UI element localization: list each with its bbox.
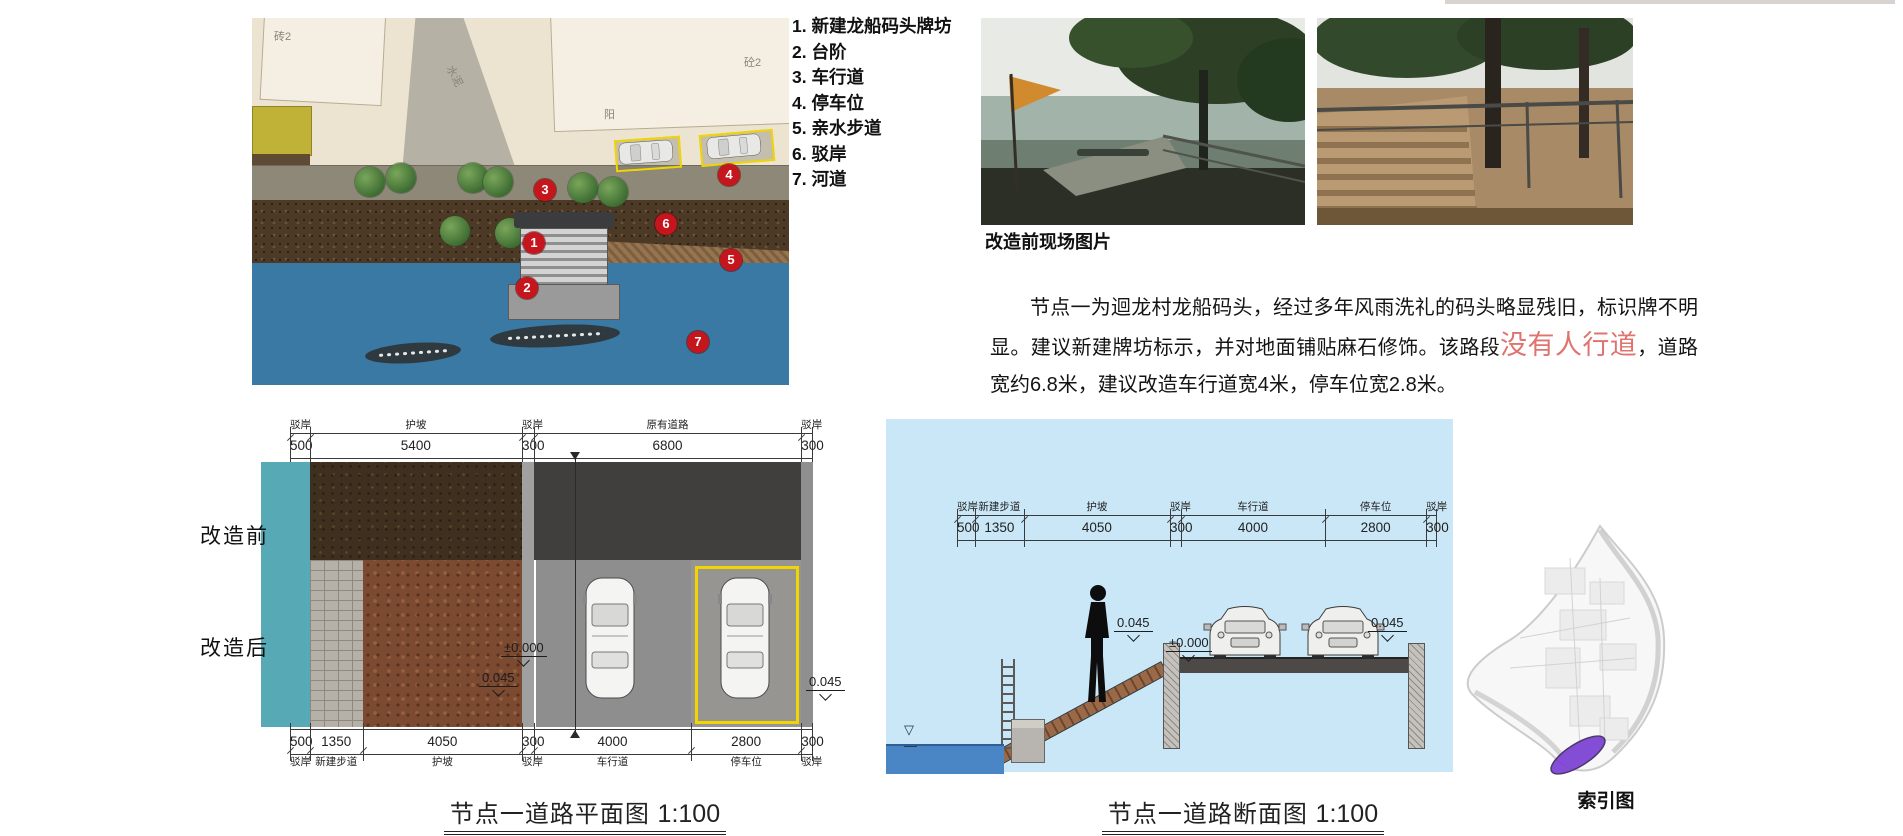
plan-marker: 6 — [655, 213, 677, 235]
legend-item: 1. 新建龙船码头牌坊 — [792, 14, 1002, 40]
pier-archway — [514, 212, 614, 228]
car-front-icon — [1200, 602, 1290, 660]
dimension-segment: 护坡 5400 — [310, 418, 522, 459]
plan-after-slope — [363, 560, 522, 727]
dimension-label: 护坡 — [1024, 500, 1170, 515]
dimension-segment: 驳岸 300 — [522, 729, 534, 770]
plan-marker: 5 — [720, 249, 742, 271]
photo-caption: 改造前现场图片 — [985, 228, 1111, 254]
road-plan-drawing: ±0.000 0.045 0.045 — [261, 462, 825, 727]
tree-icon — [440, 216, 470, 246]
car-top-icon — [718, 574, 772, 702]
site-plan-rendering: 砖2 水泥 阳 砼2 1234567 — [252, 18, 789, 385]
dimension-value: 500 — [957, 515, 975, 541]
tree-icon — [355, 167, 385, 197]
photo-before-steps — [1317, 18, 1633, 225]
plan-area-label: 阳 — [604, 106, 615, 122]
plan-before-edge — [801, 462, 813, 560]
dimension-segment: 车行道 4000 — [534, 729, 691, 770]
car-top-icon — [583, 574, 637, 702]
plan-after-edge — [801, 560, 813, 727]
dimension-label: 停车位 — [691, 755, 801, 770]
plan-field-patch — [252, 106, 312, 156]
dimension-value: 2800 — [691, 729, 801, 755]
dimension-label: 新建步道 — [310, 755, 363, 770]
dimension-value: 500 — [290, 729, 310, 755]
plan-marker: 3 — [534, 179, 556, 201]
plan-area-label: 砼2 — [744, 54, 761, 70]
dimension-segment: 驳岸 500 — [290, 418, 310, 459]
dimension-value: 2800 — [1325, 515, 1426, 541]
section-cut-line — [575, 452, 576, 738]
photo-riverside-graphic — [981, 18, 1305, 225]
dimension-label: 新建步道 — [975, 500, 1024, 515]
dimension-value: 4000 — [1181, 515, 1325, 541]
section-post-right — [1408, 643, 1425, 749]
design-document-page: 砖2 水泥 阳 砼2 1234567 1. 新建龙船 — [0, 0, 1903, 836]
dimension-segment: 新建步道 1350 — [310, 729, 363, 770]
dimension-value: 4050 — [1024, 515, 1170, 541]
plan-concrete-road — [392, 18, 522, 168]
dimension-value: 500 — [290, 433, 310, 459]
dimension-label: 驳岸 — [1426, 500, 1437, 515]
photo-steps-graphic — [1317, 18, 1633, 225]
dimension-segment: 车行道 4000 — [1181, 500, 1325, 541]
dimension-label: 车行道 — [1181, 500, 1325, 515]
section-dimension-chain: 驳岸 500 新建步道 1350 护坡 4050 驳岸 300 — [957, 500, 1437, 541]
dimension-segment: 驳岸 300 — [801, 729, 813, 770]
dimension-segment: 护坡 4050 — [1024, 500, 1170, 541]
section-dock-block — [1011, 719, 1045, 763]
section-diagram-caption: 节点一道路断面图 1:100 — [1078, 794, 1408, 829]
water-level-icon: ▽— — [904, 722, 917, 753]
plan-parcel — [550, 18, 789, 132]
index-map — [1450, 518, 1700, 786]
plan-marker: 7 — [687, 331, 709, 353]
plan-marker: 1 — [523, 232, 545, 254]
car-top-icon — [616, 138, 676, 166]
plan-marker: 4 — [718, 164, 740, 186]
dimension-label: 驳岸 — [522, 755, 534, 770]
dimension-segment: 驳岸 300 — [801, 418, 813, 459]
photo-before-riverside — [981, 18, 1305, 225]
dimension-value: 300 — [1170, 515, 1181, 541]
dimension-label: 停车位 — [1325, 500, 1426, 515]
top-edge-bar — [1445, 0, 1895, 4]
plan-area-label: 砖2 — [274, 28, 291, 44]
person-silhouette-icon — [1082, 584, 1116, 704]
dimension-label: 驳岸 — [957, 500, 975, 515]
dimension-label: 驳岸 — [522, 418, 534, 433]
car-top-icon — [701, 132, 767, 161]
elevation-mark-right: 0.045 — [806, 674, 845, 699]
plan-before-slope — [310, 462, 522, 560]
plan-embankment-water — [261, 462, 311, 727]
dimension-value: 1350 — [975, 515, 1024, 541]
plan-bottom-dimension-chain: 驳岸 500 新建步道 1350 护坡 4050 驳岸 300 车行道 4000 — [290, 729, 813, 770]
legend-item: 3. 车行道 — [792, 65, 1002, 91]
dimension-label: 护坡 — [310, 418, 522, 433]
elevation-mark-zero: ±0.000 — [501, 640, 547, 665]
dimension-label: 驳岸 — [801, 418, 813, 433]
dimension-label: 原有道路 — [534, 418, 801, 433]
dimension-value: 300 — [1426, 515, 1437, 541]
dimension-segment: 护坡 4050 — [363, 729, 522, 770]
dimension-segment: 停车位 2800 — [1325, 500, 1426, 541]
label-before-renovation: 改造前 — [200, 520, 269, 550]
road-section-drawing: 驳岸 500 新建步道 1350 护坡 4050 驳岸 300 — [886, 419, 1453, 772]
parking-stall — [699, 129, 776, 167]
dimension-label: 驳岸 — [290, 418, 310, 433]
dimension-value: 5400 — [310, 433, 522, 459]
legend-item: 4. 停车位 — [792, 91, 1002, 117]
legend-item: 6. 驳岸 — [792, 142, 1002, 168]
elevation-mark-right: 0.045 — [1368, 615, 1407, 640]
description-paragraph: 节点一为迴龙村龙船码头，经过多年风雨洗礼的码头略显残旧，标识牌不明显。建议新建牌… — [990, 290, 1698, 404]
plan-diagram-caption: 节点一道路平面图 1:100 — [430, 794, 740, 829]
dimension-label: 驳岸 — [1170, 500, 1181, 515]
elevation-mark-left: 0.045 — [479, 670, 518, 695]
tree-icon — [598, 177, 628, 207]
dimension-segment: 停车位 2800 — [691, 729, 801, 770]
index-map-caption: 索引图 — [1556, 786, 1656, 813]
label-after-renovation: 改造后 — [200, 632, 269, 662]
elevation-mark-left: 0.045 — [1114, 615, 1153, 640]
legend-item: 5. 亲水步道 — [792, 116, 1002, 142]
dimension-segment: 新建步道 1350 — [975, 500, 1024, 541]
plan-top-dimension-chain: 驳岸 500 护坡 5400 驳岸 300 原有道路 6800 驳岸 300 — [290, 418, 813, 459]
dimension-segment: 驳岸 300 — [1426, 500, 1437, 541]
parking-stall — [614, 136, 682, 173]
dimension-segment: 驳岸 500 — [290, 729, 310, 770]
description-highlight: 没有人行道 — [1500, 330, 1637, 360]
elevation-mark-zero: ±0.000 — [1166, 635, 1212, 660]
tree-icon — [568, 173, 598, 203]
legend-item: 7. 河道 — [792, 167, 1002, 193]
plan-legend: 1. 新建龙船码头牌坊2. 台阶3. 车行道4. 停车位5. 亲水步道6. 驳岸… — [792, 14, 1002, 193]
tree-icon — [386, 163, 416, 193]
dimension-label: 护坡 — [363, 755, 522, 770]
dimension-value: 4050 — [363, 729, 522, 755]
dimension-value: 300 — [801, 433, 813, 459]
dimension-label: 驳岸 — [801, 755, 813, 770]
dimension-label: 车行道 — [534, 755, 691, 770]
plan-after-walkway — [310, 560, 363, 727]
plan-marker: 2 — [516, 277, 538, 299]
dimension-value: 300 — [522, 433, 534, 459]
index-map-graphic — [1450, 518, 1700, 786]
dimension-value: 4000 — [534, 729, 691, 755]
plan-road-band — [252, 165, 789, 201]
dimension-value: 1350 — [310, 729, 363, 755]
tree-icon — [483, 167, 513, 197]
plan-before-revetment — [522, 462, 534, 560]
dimension-value: 300 — [801, 729, 813, 755]
legend-item: 2. 台阶 — [792, 40, 1002, 66]
dimension-label: 驳岸 — [290, 755, 310, 770]
